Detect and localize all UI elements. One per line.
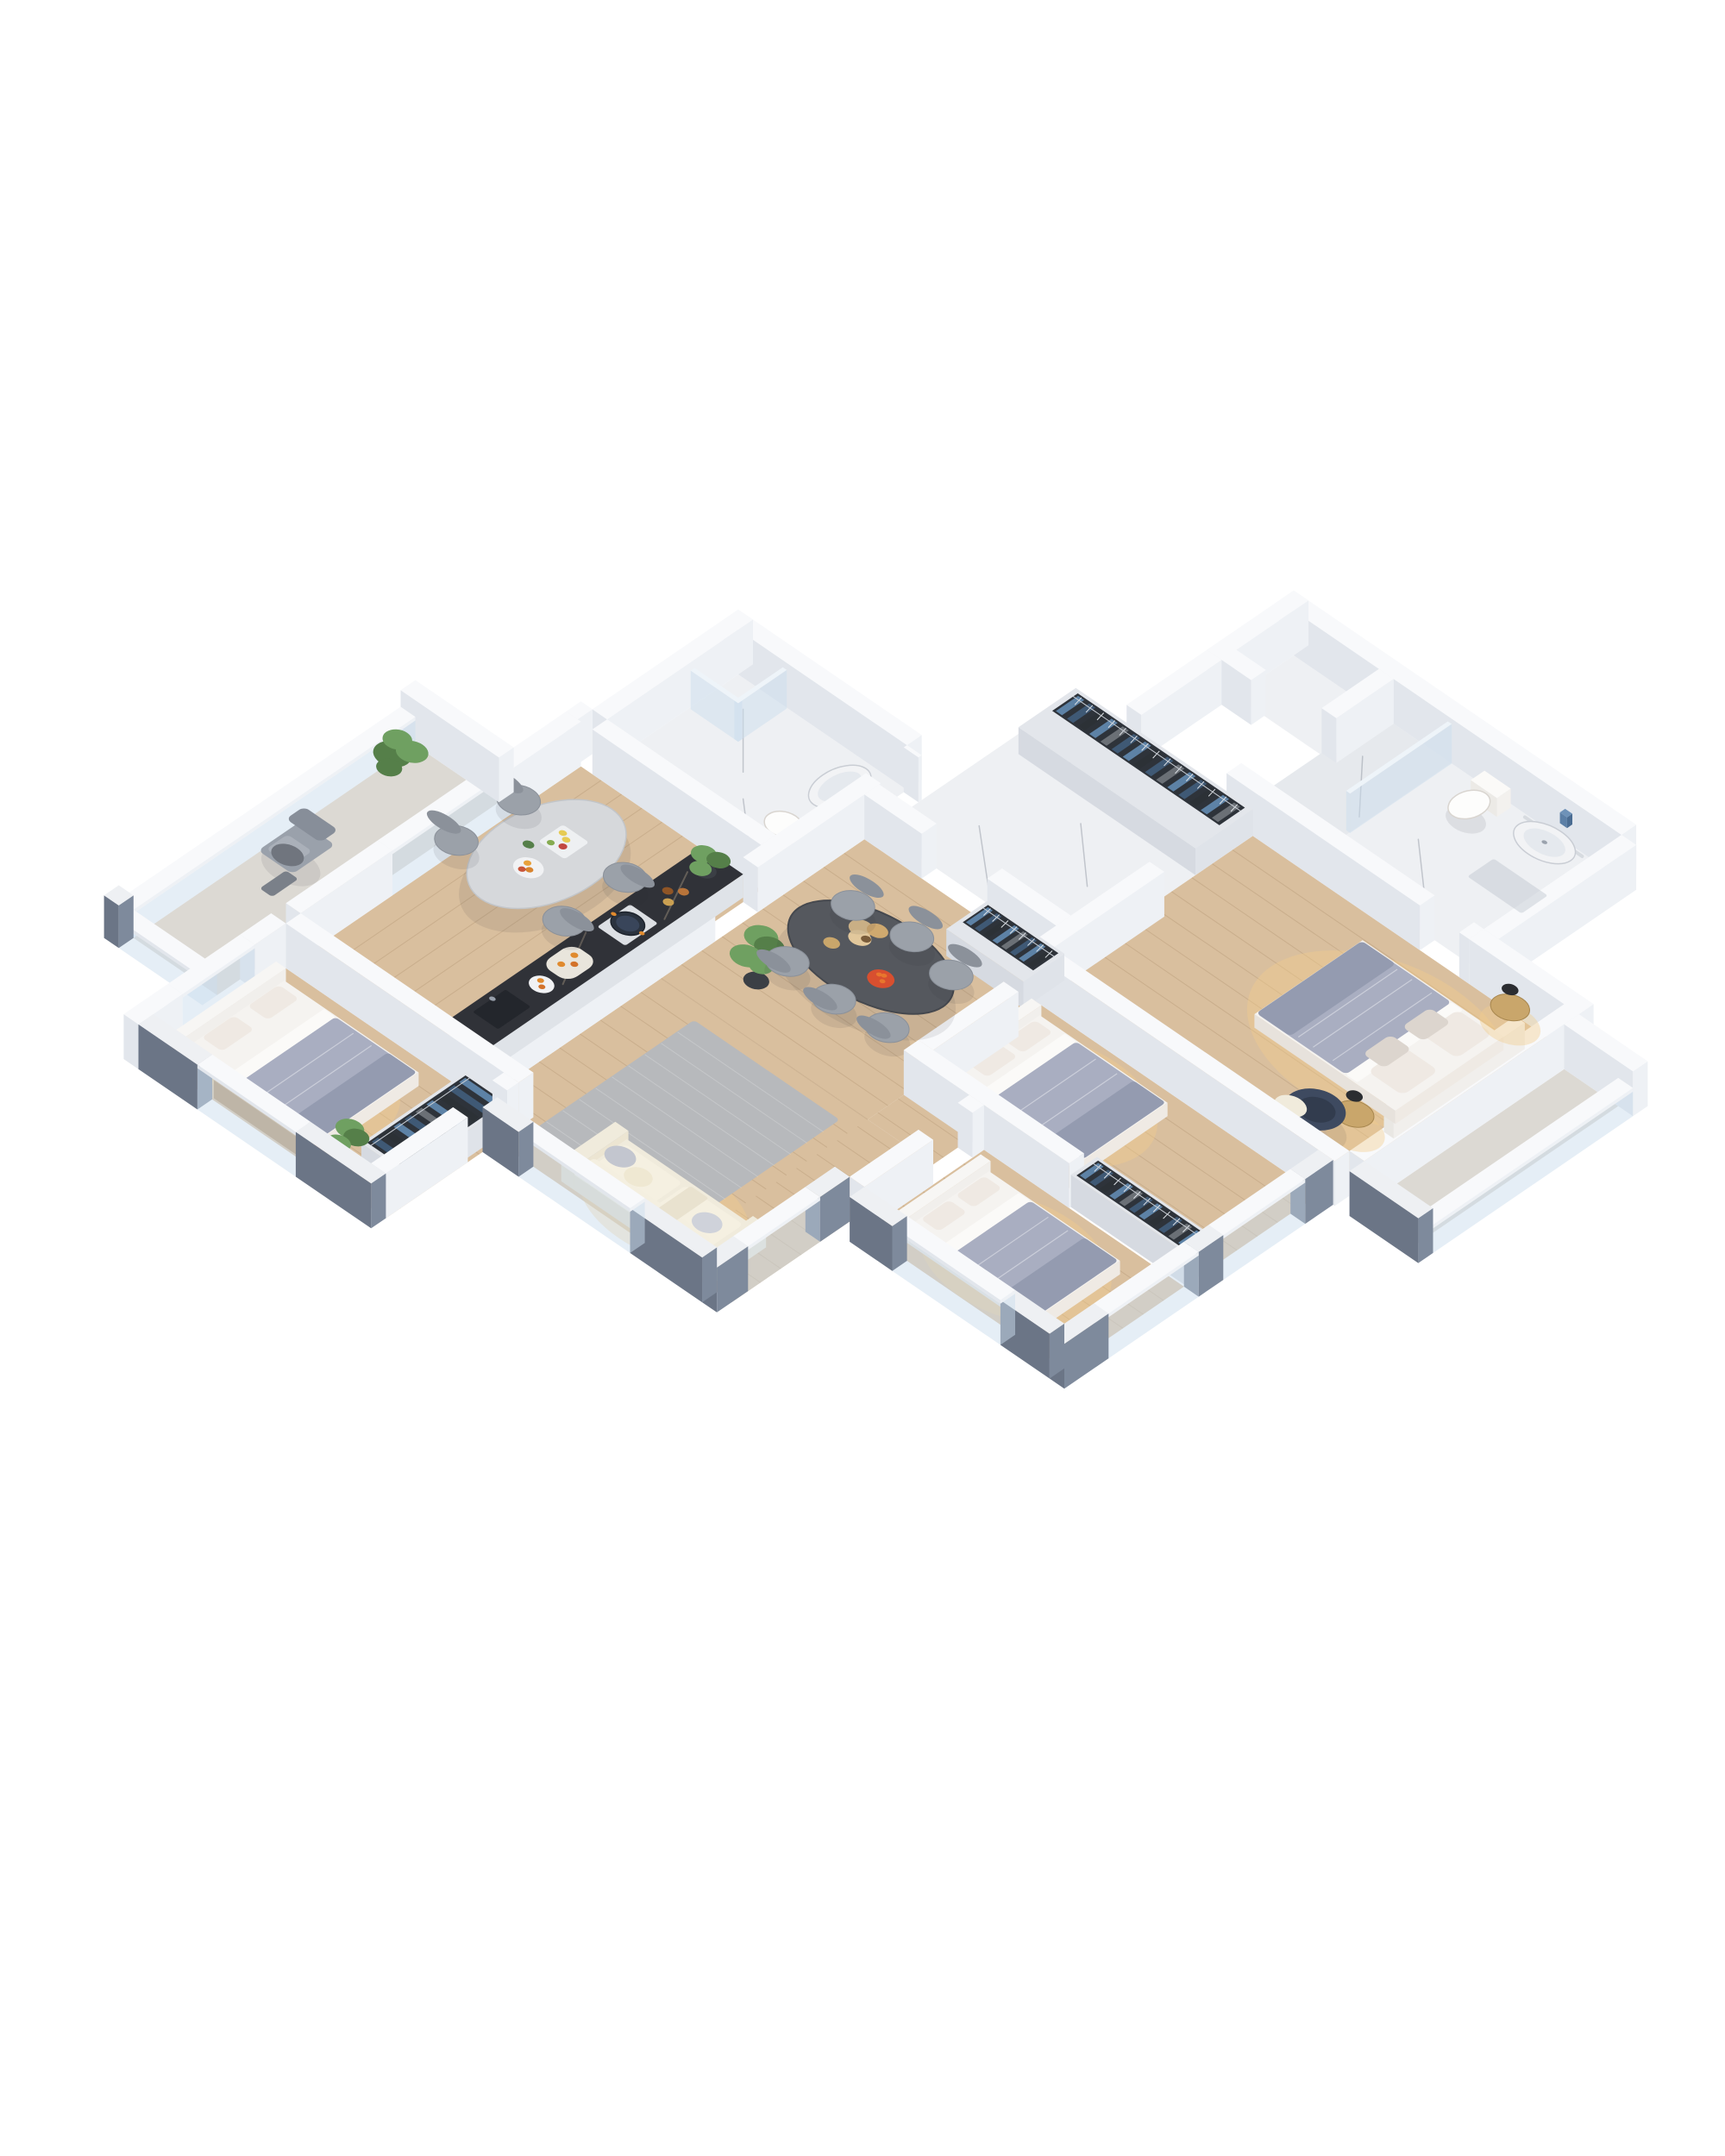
wall xyxy=(904,745,922,802)
exterior-pier xyxy=(104,886,134,949)
floorplan-render xyxy=(0,0,1725,2156)
floorplan-svg xyxy=(0,0,1725,2156)
wall xyxy=(958,1095,984,1158)
